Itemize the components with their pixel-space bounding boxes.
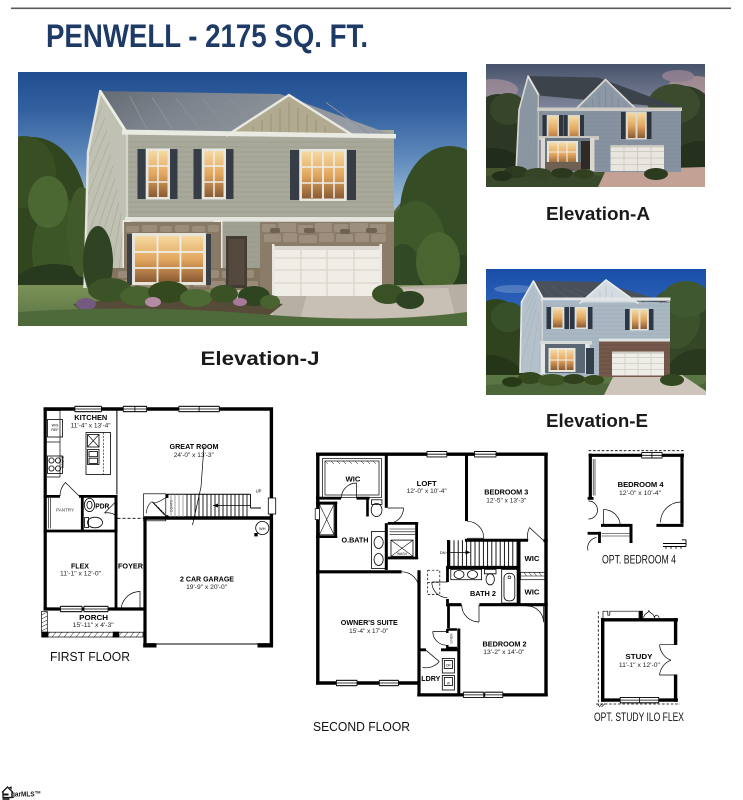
svg-text:LDRY: LDRY — [421, 674, 440, 683]
svg-text:12'-0" x 10'-4": 12'-0" x 10'-4" — [407, 488, 447, 495]
svg-text:PENWELL - 2175 SQ. FT.: PENWELL - 2175 SQ. FT. — [46, 18, 368, 54]
svg-text:GREAT ROOM: GREAT ROOM — [170, 442, 219, 451]
svg-text:WH: WH — [259, 527, 266, 531]
svg-text:12'-0" x 10'-4": 12'-0" x 10'-4" — [619, 490, 661, 497]
svg-text:12'-5" x 13'-3": 12'-5" x 13'-3" — [486, 497, 526, 504]
svg-text:FIRST FLOOR: FIRST FLOOR — [50, 649, 130, 664]
svg-text:BEDROOM 4: BEDROOM 4 — [618, 480, 665, 489]
svg-text:OWNER'S SUITE: OWNER'S SUITE — [341, 618, 398, 627]
svg-text:19'-9" x 20'-0": 19'-9" x 20'-0" — [186, 584, 227, 591]
svg-text:LOFT: LOFT — [417, 479, 438, 488]
svg-text:11'-1" x 12'-0": 11'-1" x 12'-0" — [60, 571, 101, 578]
svg-text:WIC: WIC — [525, 554, 540, 563]
svg-text:11'-4" x 13'-4": 11'-4" x 13'-4" — [71, 423, 111, 430]
svg-text:garMLS™: garMLS™ — [11, 789, 41, 798]
svg-text:REF: REF — [51, 428, 59, 432]
svg-text:OPT. BEDROOM 4: OPT. BEDROOM 4 — [602, 553, 676, 567]
svg-text:Elevation-J: Elevation-J — [201, 348, 320, 370]
svg-text:UP: UP — [256, 489, 262, 494]
svg-text:Elevation-A: Elevation-A — [546, 203, 650, 224]
svg-text:FOYER: FOYER — [118, 562, 144, 571]
svg-text:WASH: WASH — [397, 552, 408, 556]
svg-text:BATH 2: BATH 2 — [470, 589, 496, 598]
svg-text:O.BATH: O.BATH — [342, 535, 369, 544]
svg-text:RANGE: RANGE — [61, 455, 65, 468]
svg-text:PDR: PDR — [95, 501, 110, 510]
svg-text:W/S: W/S — [52, 424, 59, 428]
svg-text:W: W — [447, 682, 450, 686]
svg-text:BEDROOM 3: BEDROOM 3 — [484, 488, 528, 497]
svg-text:15'-11" x 4'-3": 15'-11" x 4'-3" — [73, 622, 114, 629]
svg-text:Elevation-E: Elevation-E — [546, 410, 648, 431]
svg-text:24'-0" x 13'-3": 24'-0" x 13'-3" — [174, 452, 214, 459]
svg-text:DR: DR — [446, 664, 451, 668]
svg-text:KITCHEN: KITCHEN — [74, 413, 107, 422]
svg-text:PANTRY: PANTRY — [56, 507, 74, 512]
svg-text:11'-1" x 12'-0": 11'-1" x 12'-0" — [619, 662, 660, 669]
svg-text:DN: DN — [440, 550, 446, 555]
svg-text:WIC: WIC — [346, 474, 361, 483]
svg-text:WIC: WIC — [525, 587, 540, 596]
svg-text:BEDROOM 2: BEDROOM 2 — [483, 639, 527, 648]
svg-text:2 CAR GARAGE: 2 CAR GARAGE — [180, 575, 234, 584]
svg-text:15'-4" x 17'-0": 15'-4" x 17'-0" — [349, 628, 388, 635]
svg-text:OPT. STUDY ILO FLEX: OPT. STUDY ILO FLEX — [594, 710, 684, 724]
svg-text:FLEX: FLEX — [71, 562, 89, 571]
svg-text:PORCH: PORCH — [79, 613, 108, 622]
svg-text:STUDY: STUDY — [625, 652, 652, 661]
svg-text:LINEN: LINEN — [449, 633, 453, 644]
svg-text:13'-2" x 14'-0": 13'-2" x 14'-0" — [483, 649, 524, 656]
svg-text:SECOND FLOOR: SECOND FLOOR — [313, 719, 410, 734]
